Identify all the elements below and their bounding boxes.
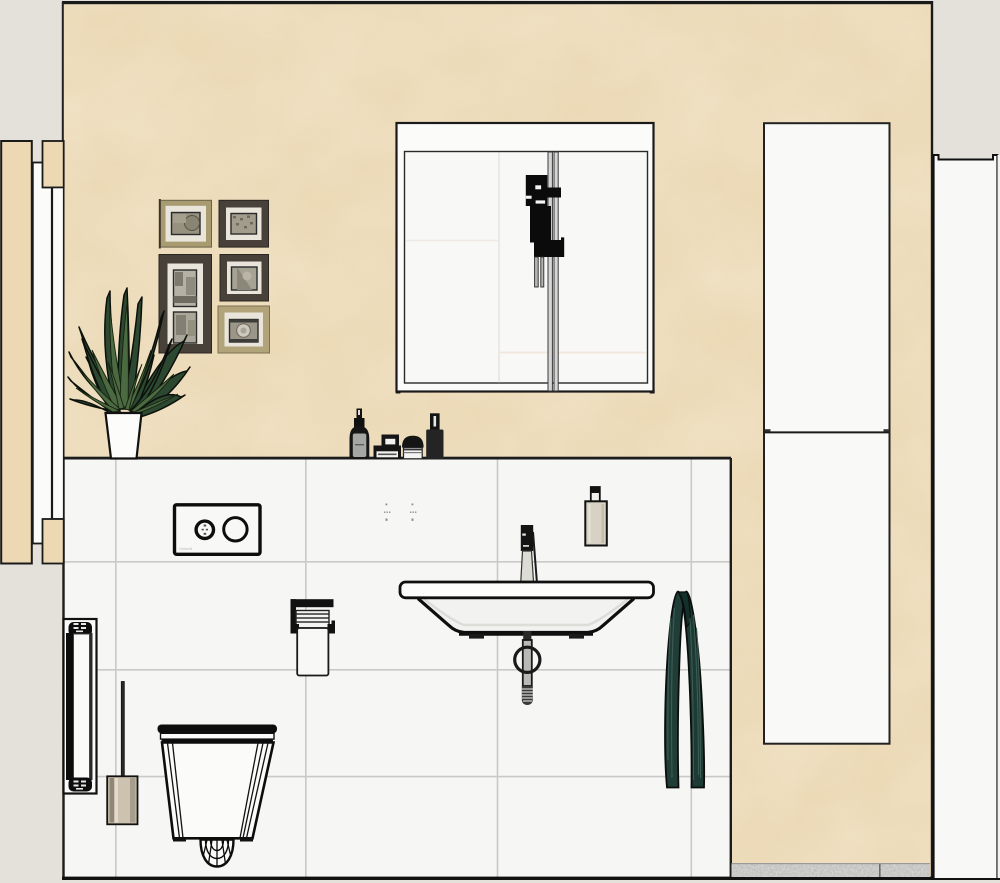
svg-text:Geberit: Geberit <box>179 546 193 551</box>
